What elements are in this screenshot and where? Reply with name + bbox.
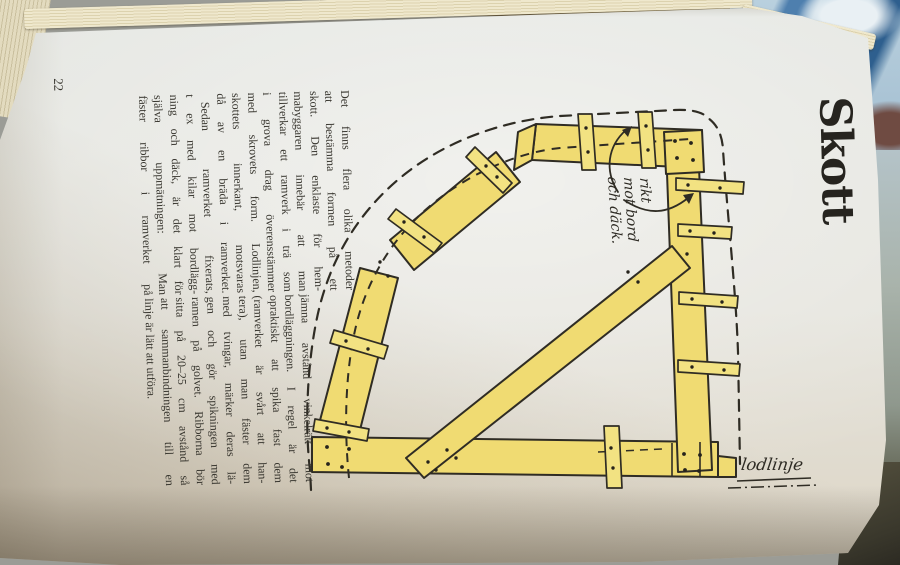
rib bbox=[578, 114, 596, 170]
right-plank bbox=[666, 144, 712, 472]
bulkhead-illustration bbox=[280, 85, 825, 500]
text-column-2: jämna avstånd vinkelrätt motbordläggning… bbox=[140, 294, 317, 486]
top-plank-end-face bbox=[514, 124, 536, 170]
chapter-title: Skott bbox=[806, 96, 863, 221]
page-number: 22 bbox=[50, 78, 67, 104]
corner-block bbox=[664, 130, 704, 174]
rib bbox=[678, 224, 732, 239]
bottom-plank-stub bbox=[718, 456, 736, 477]
handwritten-rib-note: riktmot bordoch däck. bbox=[604, 176, 660, 289]
plumb-line-label: lodlinje bbox=[739, 455, 832, 477]
rib bbox=[638, 112, 656, 168]
plumb-line-marks bbox=[728, 478, 818, 488]
rib bbox=[604, 426, 622, 488]
text-column-1: Det finns flera olika metoderatt bestämm… bbox=[134, 90, 357, 296]
book-photo: 22 Skott Det finns flera olika metoderat… bbox=[0, 0, 900, 565]
frame-planks bbox=[312, 124, 736, 478]
bottom-plank bbox=[312, 437, 718, 477]
